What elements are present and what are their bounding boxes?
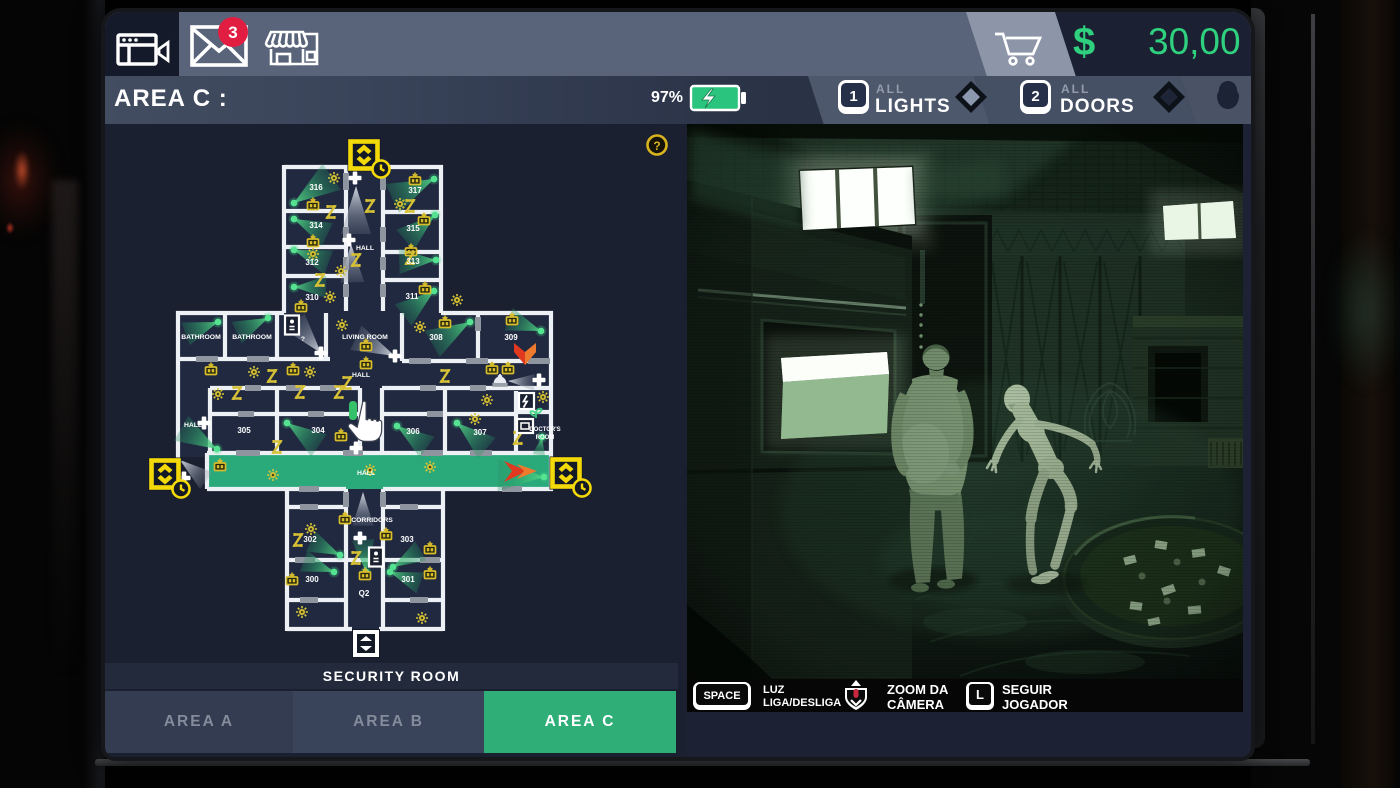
svg-text:314: 314 — [309, 221, 323, 230]
svg-text:305: 305 — [237, 426, 251, 435]
svg-text:301: 301 — [401, 575, 415, 584]
svg-text:BATHROOM: BATHROOM — [232, 334, 272, 341]
svg-text:BATHROOM: BATHROOM — [181, 334, 221, 341]
svg-text:310: 310 — [305, 293, 319, 302]
svg-text:1: 1 — [849, 88, 857, 105]
svg-text:HALL: HALL — [356, 245, 374, 252]
svg-text:DOCTOR'S: DOCTOR'S — [529, 427, 560, 433]
svg-text:302: 302 — [303, 535, 317, 544]
svg-text:316: 316 — [309, 183, 323, 192]
svg-text:306: 306 — [406, 427, 420, 436]
svg-text:300: 300 — [305, 575, 319, 584]
svg-text:3: 3 — [228, 23, 237, 42]
svg-text:309: 309 — [504, 333, 518, 342]
svg-text:?: ? — [301, 336, 305, 343]
svg-text:307: 307 — [473, 428, 487, 437]
svg-text:317: 317 — [408, 186, 422, 195]
svg-text:Q2: Q2 — [359, 589, 370, 598]
svg-text:313: 313 — [406, 257, 420, 266]
svg-text:311: 311 — [406, 292, 419, 301]
svg-text:SPACE: SPACE — [703, 690, 740, 702]
svg-text:308: 308 — [429, 333, 443, 342]
svg-text:303: 303 — [400, 535, 414, 544]
svg-text:315: 315 — [406, 224, 420, 233]
svg-text:L: L — [976, 687, 984, 702]
svg-text:?: ? — [653, 139, 660, 153]
svg-text:ROOM: ROOM — [536, 435, 555, 441]
svg-text:CORRIDORS: CORRIDORS — [351, 517, 393, 524]
svg-text:HALL: HALL — [352, 372, 370, 379]
svg-text:HALL: HALL — [184, 422, 202, 429]
svg-text:312: 312 — [305, 258, 319, 267]
svg-text:HALL: HALL — [357, 470, 375, 477]
svg-text:304: 304 — [311, 426, 325, 435]
svg-text:LIVING ROOM: LIVING ROOM — [342, 334, 388, 341]
svg-text:2: 2 — [1031, 88, 1039, 105]
